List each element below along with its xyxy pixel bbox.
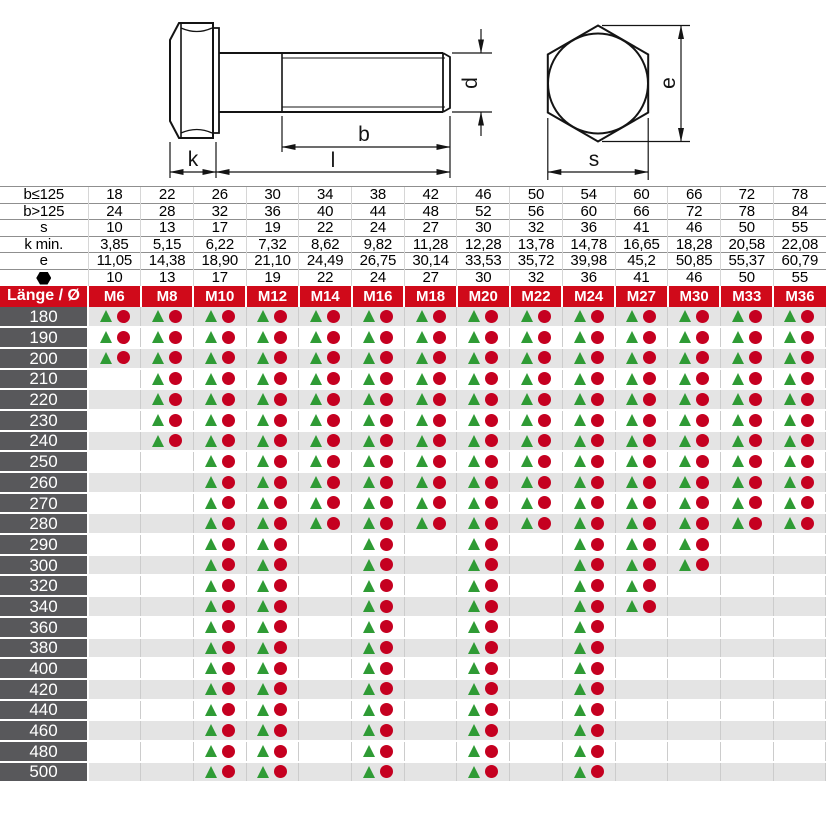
row-length-label: 300	[0, 555, 88, 576]
circle-icon	[643, 434, 656, 447]
circle-icon	[591, 558, 604, 571]
triangle-icon	[679, 517, 691, 529]
row-length-label: 180	[0, 307, 88, 328]
spec-value: 3,85	[88, 236, 141, 253]
spec-value: 60,79	[773, 253, 826, 270]
spec-value: 50	[510, 187, 563, 204]
circle-icon	[222, 496, 235, 509]
availability-cell	[510, 410, 563, 431]
circle-icon	[380, 351, 393, 364]
triangle-icon	[310, 414, 322, 426]
circle-icon	[696, 351, 709, 364]
spec-value: 27	[404, 269, 457, 286]
circle-icon	[222, 724, 235, 737]
availability-cell	[457, 638, 510, 659]
availability-cell	[352, 307, 405, 328]
circle-icon	[696, 434, 709, 447]
circle-icon	[538, 517, 551, 530]
triangle-icon	[468, 766, 480, 778]
triangle-icon	[626, 600, 638, 612]
circle-icon	[749, 455, 762, 468]
circle-icon	[485, 724, 498, 737]
availability-cell	[615, 575, 668, 596]
availability-cell	[562, 596, 615, 617]
triangle-icon	[363, 497, 375, 509]
availability-cell	[457, 451, 510, 472]
availability-cell	[88, 369, 141, 390]
availability-cell	[88, 617, 141, 638]
triangle-icon	[574, 559, 586, 571]
circle-icon	[380, 393, 393, 406]
availability-cell	[299, 410, 352, 431]
availability-cell	[457, 431, 510, 452]
circle-icon	[643, 331, 656, 344]
triangle-icon	[205, 414, 217, 426]
circle-icon	[591, 434, 604, 447]
spec-value: 36	[246, 203, 299, 220]
circle-icon	[749, 351, 762, 364]
circle-icon	[801, 310, 814, 323]
availability-cell	[193, 327, 246, 348]
circle-icon	[380, 600, 393, 613]
availability-cell	[457, 493, 510, 514]
triangle-icon	[257, 414, 269, 426]
availability-cell	[141, 596, 194, 617]
triangle-icon	[205, 310, 217, 322]
availability-cell	[299, 472, 352, 493]
circle-icon	[591, 351, 604, 364]
triangle-icon	[416, 476, 428, 488]
availability-cell	[510, 741, 563, 762]
circle-icon	[327, 496, 340, 509]
availability-cell	[510, 679, 563, 700]
triangle-icon	[679, 352, 691, 364]
triangle-icon	[521, 310, 533, 322]
circle-icon	[222, 703, 235, 716]
availability-cell	[193, 493, 246, 514]
triangle-icon	[310, 352, 322, 364]
availability-cell	[352, 472, 405, 493]
triangle-icon	[205, 683, 217, 695]
matrix-column-header: M22	[510, 286, 563, 307]
availability-cell	[299, 307, 352, 328]
triangle-icon	[679, 476, 691, 488]
row-length-label: 380	[0, 638, 88, 659]
availability-cell	[615, 327, 668, 348]
availability-cell	[193, 431, 246, 452]
availability-cell	[615, 389, 668, 410]
circle-icon	[485, 455, 498, 468]
circle-icon	[327, 455, 340, 468]
matrix-column-header: M12	[246, 286, 299, 307]
circle-icon	[591, 765, 604, 778]
availability-cell	[88, 513, 141, 534]
circle-icon	[643, 600, 656, 613]
availability-cell	[246, 369, 299, 390]
triangle-icon	[257, 683, 269, 695]
triangle-icon	[468, 455, 480, 467]
availability-cell	[615, 555, 668, 576]
availability-cell	[457, 762, 510, 783]
circle-icon	[591, 745, 604, 758]
availability-cell	[404, 596, 457, 617]
availability-cell	[615, 658, 668, 679]
availability-cell	[88, 720, 141, 741]
availability-cell	[615, 741, 668, 762]
spec-value: 50	[720, 220, 773, 237]
availability-cell	[720, 472, 773, 493]
spec-value: 6,22	[193, 236, 246, 253]
availability-cell	[720, 658, 773, 679]
triangle-icon	[626, 310, 638, 322]
availability-cell	[510, 493, 563, 514]
availability-cell	[720, 513, 773, 534]
triangle-icon	[205, 724, 217, 736]
availability-cell	[246, 575, 299, 596]
availability-cell	[193, 679, 246, 700]
circle-icon	[591, 620, 604, 633]
triangle-icon	[363, 310, 375, 322]
spec-value: 18	[88, 187, 141, 204]
availability-cell	[615, 431, 668, 452]
circle-icon	[380, 724, 393, 737]
circle-icon	[696, 331, 709, 344]
triangle-icon	[679, 393, 691, 405]
availability-cell	[193, 451, 246, 472]
spec-value: 9,82	[352, 236, 405, 253]
availability-cell	[193, 720, 246, 741]
spec-value: 28	[141, 203, 194, 220]
triangle-icon	[152, 352, 164, 364]
row-length-label: 210	[0, 369, 88, 390]
triangle-icon	[574, 704, 586, 716]
triangle-icon	[257, 517, 269, 529]
triangle-icon	[363, 517, 375, 529]
circle-icon	[222, 558, 235, 571]
circle-icon	[696, 455, 709, 468]
availability-cell	[246, 658, 299, 679]
triangle-icon	[679, 559, 691, 571]
availability-cell	[457, 513, 510, 534]
circle-icon	[327, 517, 340, 530]
availability-cell	[668, 575, 721, 596]
triangle-icon	[732, 331, 744, 343]
availability-cell	[510, 431, 563, 452]
matrix-column-header: M33	[720, 286, 773, 307]
circle-icon	[380, 372, 393, 385]
spec-value: 35,72	[510, 253, 563, 270]
availability-cell	[773, 410, 826, 431]
triangle-icon	[679, 331, 691, 343]
circle-icon	[274, 496, 287, 509]
availability-cell	[246, 534, 299, 555]
triangle-icon	[257, 600, 269, 612]
circle-icon	[274, 662, 287, 675]
triangle-icon	[100, 331, 112, 343]
triangle-icon	[521, 393, 533, 405]
availability-cell	[720, 596, 773, 617]
availability-cell	[720, 307, 773, 328]
availability-cell	[141, 638, 194, 659]
spec-value: 55	[773, 269, 826, 286]
circle-icon	[433, 351, 446, 364]
availability-cell	[615, 596, 668, 617]
availability-cell	[193, 741, 246, 762]
availability-cell	[88, 575, 141, 596]
triangle-icon	[416, 310, 428, 322]
availability-cell	[615, 472, 668, 493]
triangle-icon	[626, 352, 638, 364]
circle-icon	[485, 393, 498, 406]
spec-value: 34	[299, 187, 352, 204]
availability-cell	[668, 741, 721, 762]
availability-cell	[352, 451, 405, 472]
triangle-icon	[626, 476, 638, 488]
availability-cell	[88, 493, 141, 514]
triangle-icon	[257, 393, 269, 405]
circle-icon	[591, 310, 604, 323]
circle-icon	[801, 517, 814, 530]
circle-icon	[380, 414, 393, 427]
availability-cell	[562, 658, 615, 679]
triangle-icon	[784, 476, 796, 488]
availability-cell	[246, 431, 299, 452]
availability-cell	[510, 327, 563, 348]
availability-cell	[457, 575, 510, 596]
spec-value: 11,05	[88, 253, 141, 270]
spec-value: 33,53	[457, 253, 510, 270]
availability-cell	[88, 679, 141, 700]
circle-icon	[591, 496, 604, 509]
availability-cell	[562, 493, 615, 514]
availability-cell	[193, 369, 246, 390]
matrix-column-header: M18	[404, 286, 457, 307]
circle-icon	[169, 310, 182, 323]
spec-value: 30	[246, 187, 299, 204]
triangle-icon	[257, 455, 269, 467]
triangle-icon	[732, 455, 744, 467]
spec-value: 26,75	[352, 253, 405, 270]
triangle-icon	[468, 310, 480, 322]
spec-value: 66	[615, 203, 668, 220]
availability-cell	[404, 534, 457, 555]
availability-cell	[141, 741, 194, 762]
triangle-icon	[205, 517, 217, 529]
availability-cell	[404, 472, 457, 493]
circle-icon	[380, 765, 393, 778]
availability-cell	[246, 348, 299, 369]
availability-cell	[773, 617, 826, 638]
row-length-label: 420	[0, 679, 88, 700]
availability-cell	[193, 534, 246, 555]
spec-row: b>1252428323640444852566066727884	[0, 203, 826, 220]
circle-icon	[485, 765, 498, 778]
availability-cell	[299, 513, 352, 534]
availability-cell	[404, 700, 457, 721]
circle-icon	[380, 745, 393, 758]
triangle-icon	[521, 435, 533, 447]
availability-cell	[141, 307, 194, 328]
triangle-icon	[574, 310, 586, 322]
triangle-icon	[732, 517, 744, 529]
availability-cell	[141, 451, 194, 472]
availability-cell	[720, 451, 773, 472]
triangle-icon	[574, 373, 586, 385]
circle-icon	[696, 538, 709, 551]
triangle-icon	[205, 538, 217, 550]
circle-icon	[696, 517, 709, 530]
triangle-icon	[363, 393, 375, 405]
availability-cell	[352, 658, 405, 679]
availability-cell	[246, 307, 299, 328]
triangle-icon	[205, 662, 217, 674]
table-row: 290	[0, 534, 826, 555]
triangle-icon	[679, 373, 691, 385]
availability-cell	[562, 389, 615, 410]
availability-cell	[193, 658, 246, 679]
triangle-icon	[626, 414, 638, 426]
triangle-icon	[626, 559, 638, 571]
spec-value: 78	[773, 187, 826, 204]
availability-cell	[510, 575, 563, 596]
circle-icon	[327, 476, 340, 489]
availability-cell	[88, 596, 141, 617]
availability-cell	[668, 679, 721, 700]
triangle-icon	[574, 517, 586, 529]
availability-cell	[299, 762, 352, 783]
availability-cell	[141, 410, 194, 431]
circle-icon	[801, 455, 814, 468]
triangle-icon	[784, 414, 796, 426]
matrix-column-header: M36	[773, 286, 826, 307]
triangle-icon	[257, 745, 269, 757]
spec-value: 78	[720, 203, 773, 220]
triangle-icon	[574, 497, 586, 509]
table-row: 360	[0, 617, 826, 638]
availability-cell	[668, 307, 721, 328]
circle-icon	[749, 393, 762, 406]
triangle-icon	[626, 517, 638, 529]
spec-row: 1013171922242730323641465055	[0, 269, 826, 286]
availability-cell	[615, 348, 668, 369]
row-length-label: 290	[0, 534, 88, 555]
spec-row-label: b>125	[0, 203, 88, 220]
spec-value: 18,90	[193, 253, 246, 270]
circle-icon	[485, 620, 498, 633]
triangle-icon	[468, 476, 480, 488]
triangle-icon	[521, 476, 533, 488]
availability-cell	[193, 307, 246, 328]
circle-icon	[380, 558, 393, 571]
triangle-icon	[257, 352, 269, 364]
triangle-icon	[152, 393, 164, 405]
availability-cell	[773, 679, 826, 700]
circle-icon	[591, 579, 604, 592]
availability-cell	[773, 534, 826, 555]
availability-cell	[457, 327, 510, 348]
circle-icon	[538, 496, 551, 509]
availability-cell	[457, 596, 510, 617]
availability-cell	[562, 451, 615, 472]
availability-cell	[457, 369, 510, 390]
matrix-column-header: M14	[299, 286, 352, 307]
triangle-icon	[257, 559, 269, 571]
circle-icon	[485, 351, 498, 364]
availability-cell	[668, 327, 721, 348]
circle-icon	[485, 538, 498, 551]
availability-cell	[457, 348, 510, 369]
triangle-icon	[784, 352, 796, 364]
availability-cell	[510, 700, 563, 721]
availability-cell	[352, 762, 405, 783]
matrix-column-header: M6	[88, 286, 141, 307]
spec-value: 48	[404, 203, 457, 220]
triangle-icon	[363, 559, 375, 571]
availability-cell	[246, 700, 299, 721]
availability-cell	[141, 348, 194, 369]
availability-cell	[352, 327, 405, 348]
circle-icon	[696, 558, 709, 571]
triangle-icon	[363, 766, 375, 778]
circle-icon	[749, 331, 762, 344]
circle-icon	[696, 310, 709, 323]
circle-icon	[380, 662, 393, 675]
availability-cell	[773, 720, 826, 741]
triangle-icon	[363, 476, 375, 488]
circle-icon	[801, 331, 814, 344]
table-row: 270	[0, 493, 826, 514]
triangle-icon	[416, 331, 428, 343]
availability-cell	[615, 700, 668, 721]
availability-cell	[720, 410, 773, 431]
spec-value: 21,10	[246, 253, 299, 270]
table-row: 200	[0, 348, 826, 369]
matrix-column-header: M27	[615, 286, 668, 307]
circle-icon	[749, 496, 762, 509]
circle-icon	[538, 310, 551, 323]
circle-icon	[433, 331, 446, 344]
availability-cell	[404, 389, 457, 410]
row-length-label: 320	[0, 575, 88, 596]
availability-cell	[562, 617, 615, 638]
triangle-icon	[416, 517, 428, 529]
triangle-icon	[310, 331, 322, 343]
triangle-icon	[100, 310, 112, 322]
triangle-icon	[310, 517, 322, 529]
triangle-icon	[626, 373, 638, 385]
triangle-icon	[205, 497, 217, 509]
availability-cell	[562, 307, 615, 328]
circle-icon	[380, 434, 393, 447]
availability-cell	[720, 534, 773, 555]
spec-value: 19	[246, 269, 299, 286]
circle-icon	[433, 434, 446, 447]
circle-icon	[433, 455, 446, 468]
availability-cell	[562, 638, 615, 659]
matrix-column-header: M24	[562, 286, 615, 307]
availability-cell	[615, 638, 668, 659]
availability-cell	[773, 700, 826, 721]
technical-drawing-section: k l b d s e	[0, 0, 826, 186]
triangle-icon	[574, 414, 586, 426]
triangle-icon	[732, 393, 744, 405]
triangle-icon	[468, 621, 480, 633]
triangle-icon	[363, 704, 375, 716]
availability-cell	[352, 638, 405, 659]
triangle-icon	[205, 331, 217, 343]
circle-icon	[643, 372, 656, 385]
availability-cell	[510, 658, 563, 679]
